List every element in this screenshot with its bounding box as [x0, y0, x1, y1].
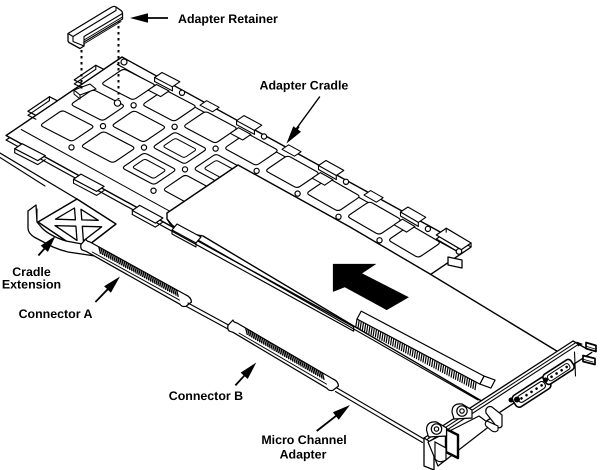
svg-text:Micro Channel: Micro Channel — [261, 433, 346, 447]
svg-text:Connector B: Connector B — [169, 389, 243, 403]
svg-text:Adapter Retainer: Adapter Retainer — [178, 12, 278, 26]
svg-text:Connector A: Connector A — [19, 307, 93, 321]
svg-text:Extension: Extension — [2, 278, 61, 292]
svg-text:Adapter: Adapter — [280, 447, 327, 461]
svg-text:Adapter Cradle: Adapter Cradle — [260, 79, 349, 93]
